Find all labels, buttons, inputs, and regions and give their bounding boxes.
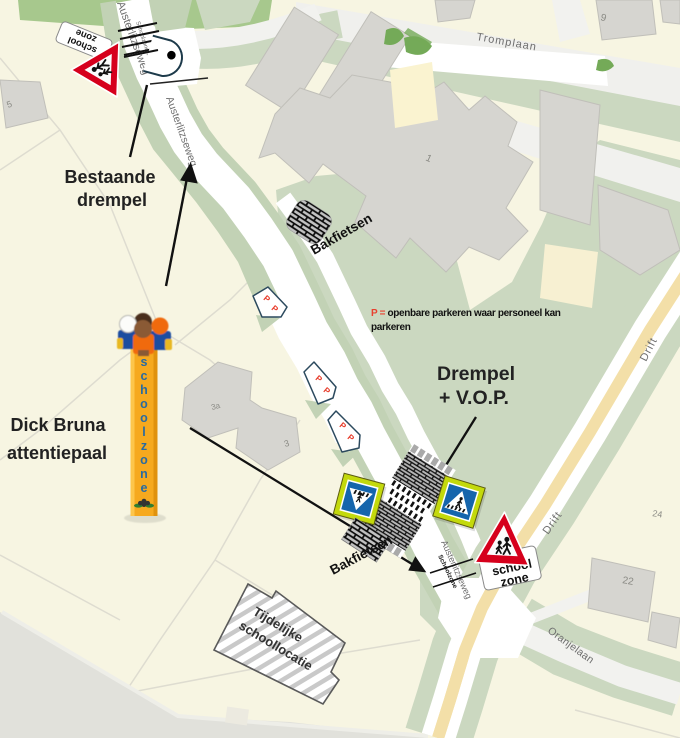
svg-text:Bestaande: Bestaande: [64, 167, 155, 187]
svg-text:Dick Bruna: Dick Bruna: [10, 415, 106, 435]
svg-text:z: z: [141, 439, 147, 453]
svg-text:drempel: drempel: [77, 190, 147, 210]
svg-text:n: n: [140, 467, 148, 481]
svg-text:attentiepaal: attentiepaal: [7, 443, 107, 463]
svg-text:P = openbare parkeren waar per: P = openbare parkeren waar personeel kan: [371, 308, 561, 319]
svg-text:o: o: [140, 411, 148, 425]
svg-text:o: o: [140, 397, 148, 411]
svg-text:o: o: [140, 453, 148, 467]
svg-text:Drempel: Drempel: [437, 363, 515, 385]
svg-text:h: h: [140, 383, 148, 397]
svg-text:s: s: [141, 355, 148, 369]
svg-text:c: c: [141, 369, 148, 383]
svg-text:l: l: [142, 425, 145, 439]
svg-text:24: 24: [652, 508, 664, 520]
svg-text:e: e: [141, 481, 148, 495]
svg-text:parkeren: parkeren: [371, 322, 411, 333]
svg-text:+ V.O.P.: + V.O.P.: [439, 387, 509, 409]
